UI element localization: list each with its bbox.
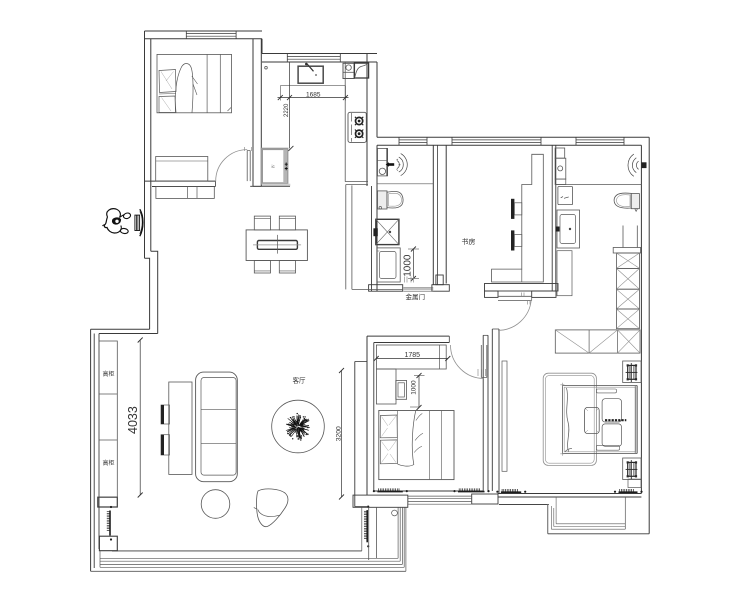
svg-text:3200: 3200 bbox=[335, 426, 342, 441]
svg-text:高柜: 高柜 bbox=[103, 459, 115, 467]
svg-text:1000: 1000 bbox=[403, 254, 414, 277]
svg-text:客厅: 客厅 bbox=[293, 376, 307, 385]
svg-text:1785: 1785 bbox=[405, 352, 421, 359]
svg-text:1685: 1685 bbox=[306, 92, 321, 99]
svg-text:金属门: 金属门 bbox=[406, 292, 426, 301]
svg-text:书房: 书房 bbox=[462, 237, 476, 246]
svg-text:1000: 1000 bbox=[410, 380, 417, 395]
svg-text:高柜: 高柜 bbox=[103, 370, 115, 378]
svg-text:4033: 4033 bbox=[126, 406, 140, 434]
svg-text:2220: 2220 bbox=[284, 103, 290, 117]
